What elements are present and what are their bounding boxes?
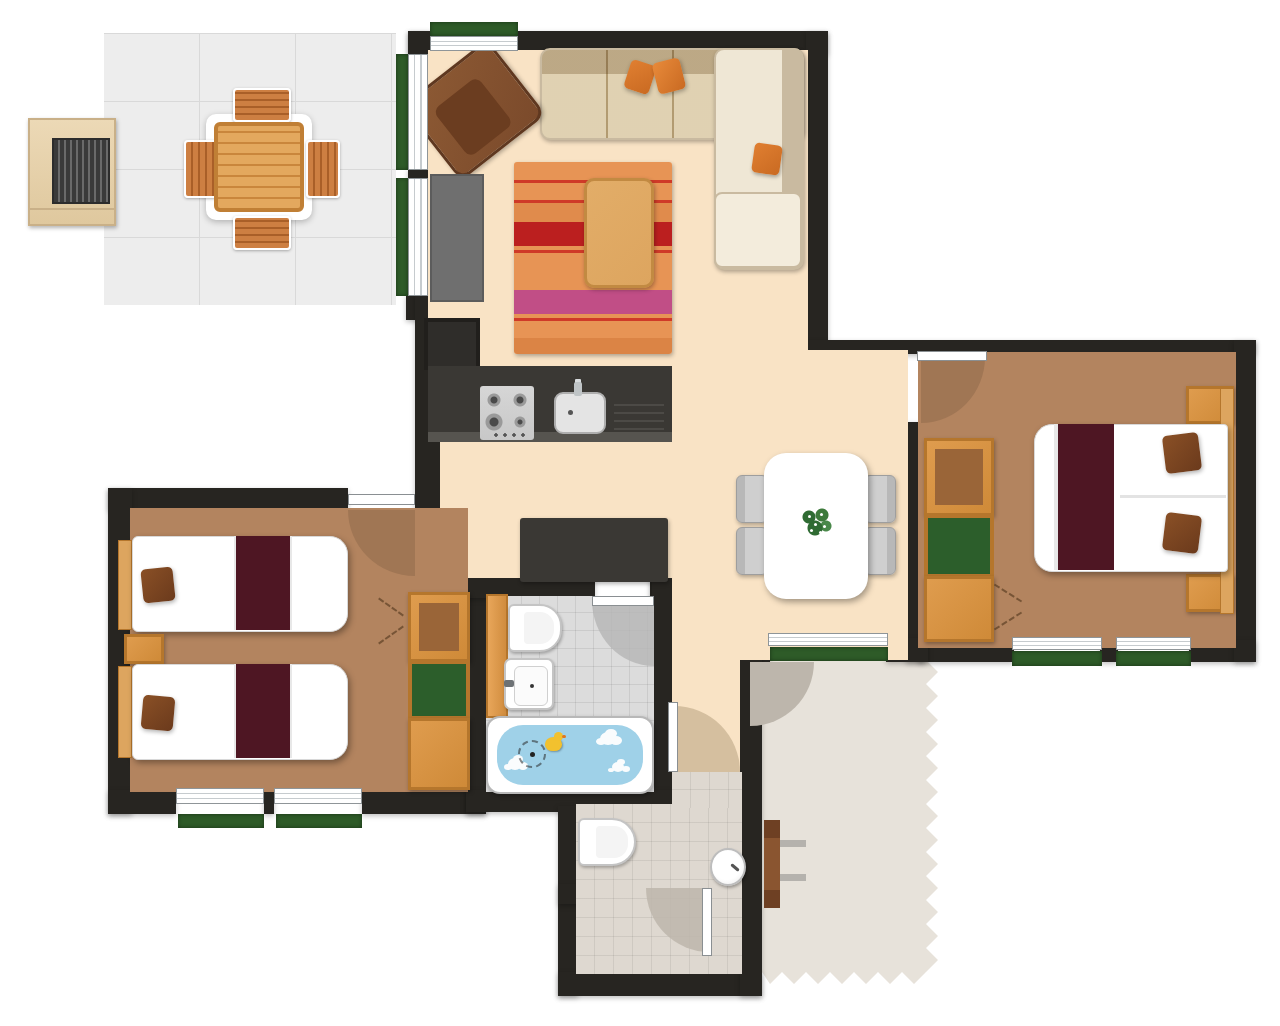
sofa-chaise	[714, 192, 802, 268]
dining-chair-right-2	[864, 527, 896, 575]
bench-cap-top	[764, 820, 780, 838]
floor-plan	[0, 0, 1280, 1026]
wall-master-bottom-corner	[1234, 640, 1256, 662]
wall-twin-top	[108, 488, 348, 510]
bath-washbasin-tap	[504, 680, 514, 687]
gas-hob	[480, 386, 534, 440]
garden-chair-left	[184, 140, 218, 198]
shutter-left-lower	[396, 178, 408, 296]
wall-twin-bottom-mullion	[264, 790, 274, 814]
shutter-twin-2	[276, 814, 362, 828]
window-living-top	[430, 36, 518, 51]
garden-chair-top	[233, 88, 291, 122]
window-master-2	[1116, 637, 1191, 650]
coffee-table	[584, 178, 654, 288]
shower-head-dot	[530, 752, 535, 757]
twin-door-leaf	[348, 494, 415, 505]
window-twin-2	[274, 788, 362, 804]
bench-leg-2	[780, 874, 806, 881]
wall-wc-bottom	[558, 972, 762, 996]
wc-floor-notch	[672, 772, 742, 808]
wall-twin-bottom-a	[108, 790, 176, 814]
wc-toilet	[578, 818, 636, 866]
shutter-twin-1	[178, 814, 264, 828]
twin-wardrobe-green	[408, 660, 470, 720]
wc-basin-tap	[730, 863, 740, 872]
twin-wardrobe-top	[408, 592, 470, 662]
master-pillow-1	[1162, 432, 1202, 474]
kitchen-tall-unit	[424, 318, 480, 370]
rubber-duck-beak	[562, 735, 566, 738]
wall-bath-right	[652, 578, 672, 812]
master-bed-split	[1120, 495, 1226, 498]
drainer-lines	[614, 398, 664, 436]
bath-washbasin	[504, 658, 554, 710]
twin-pillow-1	[140, 566, 175, 603]
sink-drain	[568, 410, 573, 415]
foam-cloud-2	[612, 762, 624, 772]
bench-leg-1	[780, 840, 806, 847]
twin-bed-2-runner	[236, 664, 290, 758]
master-door-leaf	[917, 351, 987, 361]
bench-cap-bottom	[764, 890, 780, 908]
window-entrance	[768, 633, 888, 646]
master-wardrobe-shelf-brown	[935, 449, 983, 505]
twin-pillow-2	[141, 695, 176, 732]
sideboard	[520, 518, 668, 582]
glazing-left-upper	[408, 54, 428, 170]
twin-nightstand	[124, 634, 164, 664]
garden-chair-bottom	[233, 216, 291, 250]
wall-master-bottom-a	[918, 646, 1014, 662]
bath-washbasin-drain	[530, 684, 534, 688]
armchair-seat	[433, 76, 514, 158]
bbq-grill	[28, 118, 116, 226]
twin-headboard-1	[118, 540, 132, 630]
rubber-duck	[545, 737, 562, 751]
foam-cloud-1	[600, 732, 616, 745]
window-master-1	[1012, 637, 1102, 650]
shower-head-dashed	[518, 740, 546, 768]
plant-flowers	[808, 515, 811, 518]
shutter-top-window	[430, 22, 518, 36]
master-wardrobe-bottom	[924, 576, 994, 642]
master-wardrobe-green	[924, 514, 994, 578]
media-unit	[430, 174, 484, 302]
bath-toilet	[508, 604, 562, 652]
shutter-left-upper	[396, 54, 408, 170]
window-twin-1	[176, 788, 264, 804]
wc-round-basin	[710, 848, 746, 886]
bbq-grate	[52, 138, 110, 204]
glazing-left-lower	[408, 178, 428, 296]
wall-master-right	[1234, 340, 1256, 662]
sofa-cushion-3	[751, 142, 783, 176]
bench-plank	[764, 820, 780, 908]
twin-wardrobe-bottom	[408, 718, 470, 790]
kitchen-sink	[554, 392, 606, 434]
bath-toilet-seat	[524, 612, 554, 644]
bbq-shelf-line	[30, 208, 114, 210]
twin-wardrobe-shelf-brown	[419, 603, 459, 651]
dining-chair-right-1	[864, 475, 896, 523]
bathroom-door-leaf	[592, 596, 654, 606]
twin-headboard-2	[118, 666, 132, 758]
corridor-door-leaf	[668, 702, 678, 772]
master-wardrobe-top	[924, 438, 994, 516]
shutter-master-1	[1012, 651, 1102, 666]
master-pillow-2	[1162, 512, 1202, 554]
garden-chair-right	[306, 140, 340, 198]
master-bed-runner	[1056, 424, 1114, 570]
shutter-master-2	[1116, 651, 1191, 666]
twin-bed-1-runner	[236, 536, 290, 630]
garden-table	[214, 122, 304, 212]
sink-faucet	[574, 382, 582, 396]
shutter-entrance	[770, 647, 888, 661]
plant-centerpiece	[799, 505, 835, 541]
wall-living-right	[806, 31, 828, 353]
wc-door-leaf	[702, 888, 712, 956]
wc-toilet-seat	[596, 826, 628, 858]
wall-master-bottom-b	[1189, 646, 1234, 662]
